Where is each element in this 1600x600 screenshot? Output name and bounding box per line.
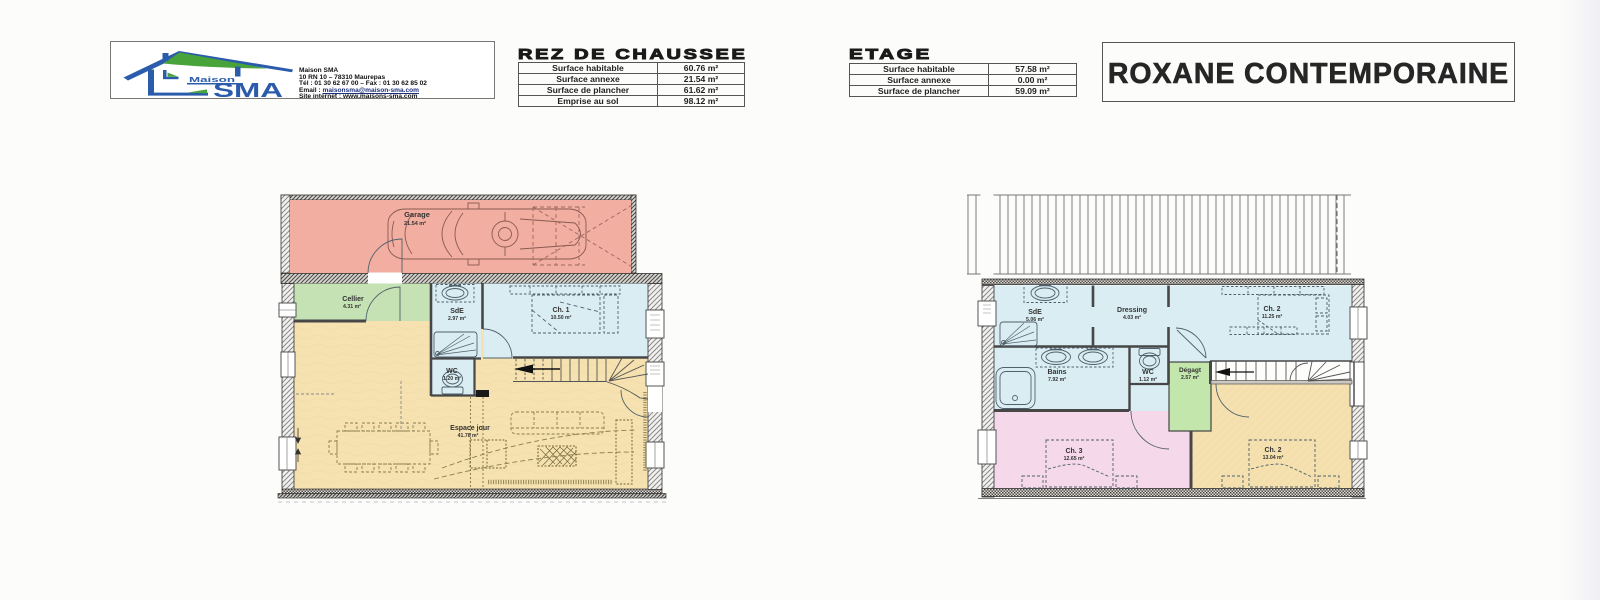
svg-text:Bains: Bains [1047,369,1066,376]
svg-text:SdE: SdE [450,308,464,315]
svg-text:Ch. 2: Ch. 2 [1264,447,1281,454]
svg-text:4.31 m²: 4.31 m² [343,304,361,310]
svg-text:SdE: SdE [1028,309,1042,316]
svg-text:2.97 m²: 2.97 m² [448,316,466,322]
svg-text:Cellier: Cellier [342,296,364,303]
svg-text:Dressing: Dressing [1117,307,1147,314]
svg-text:41.78 m²: 41.78 m² [458,433,479,439]
svg-text:1.12 m²: 1.12 m² [1139,377,1157,383]
svg-text:11.25 m²: 11.25 m² [1262,314,1283,320]
svg-text:7.92 m²: 7.92 m² [1048,377,1066,383]
svg-text:WC: WC [1142,369,1154,376]
svg-text:Dégagt: Dégagt [1179,367,1202,374]
svg-text:21.54 m²: 21.54 m² [404,220,426,227]
svg-text:5.06 m²: 5.06 m² [1026,317,1044,323]
svg-text:13.04 m²: 13.04 m² [1263,455,1284,461]
svg-text:Espace jour: Espace jour [450,425,490,432]
svg-text:SMA: SMA [213,79,283,98]
svg-text:12.65 m²: 12.65 m² [1064,456,1085,462]
svg-text:1.20 m²: 1.20 m² [443,376,461,382]
svg-text:Ch. 1: Ch. 1 [552,307,569,314]
svg-text:Garage: Garage [404,210,430,219]
svg-text:10.50 m²: 10.50 m² [551,315,572,321]
svg-text:Ch. 2: Ch. 2 [1263,306,1280,313]
svg-text:Ch. 3: Ch. 3 [1065,448,1082,455]
svg-text:2.57 m²: 2.57 m² [1181,375,1199,381]
svg-text:WC: WC [446,368,458,375]
svg-text:4.03 m²: 4.03 m² [1123,315,1141,321]
